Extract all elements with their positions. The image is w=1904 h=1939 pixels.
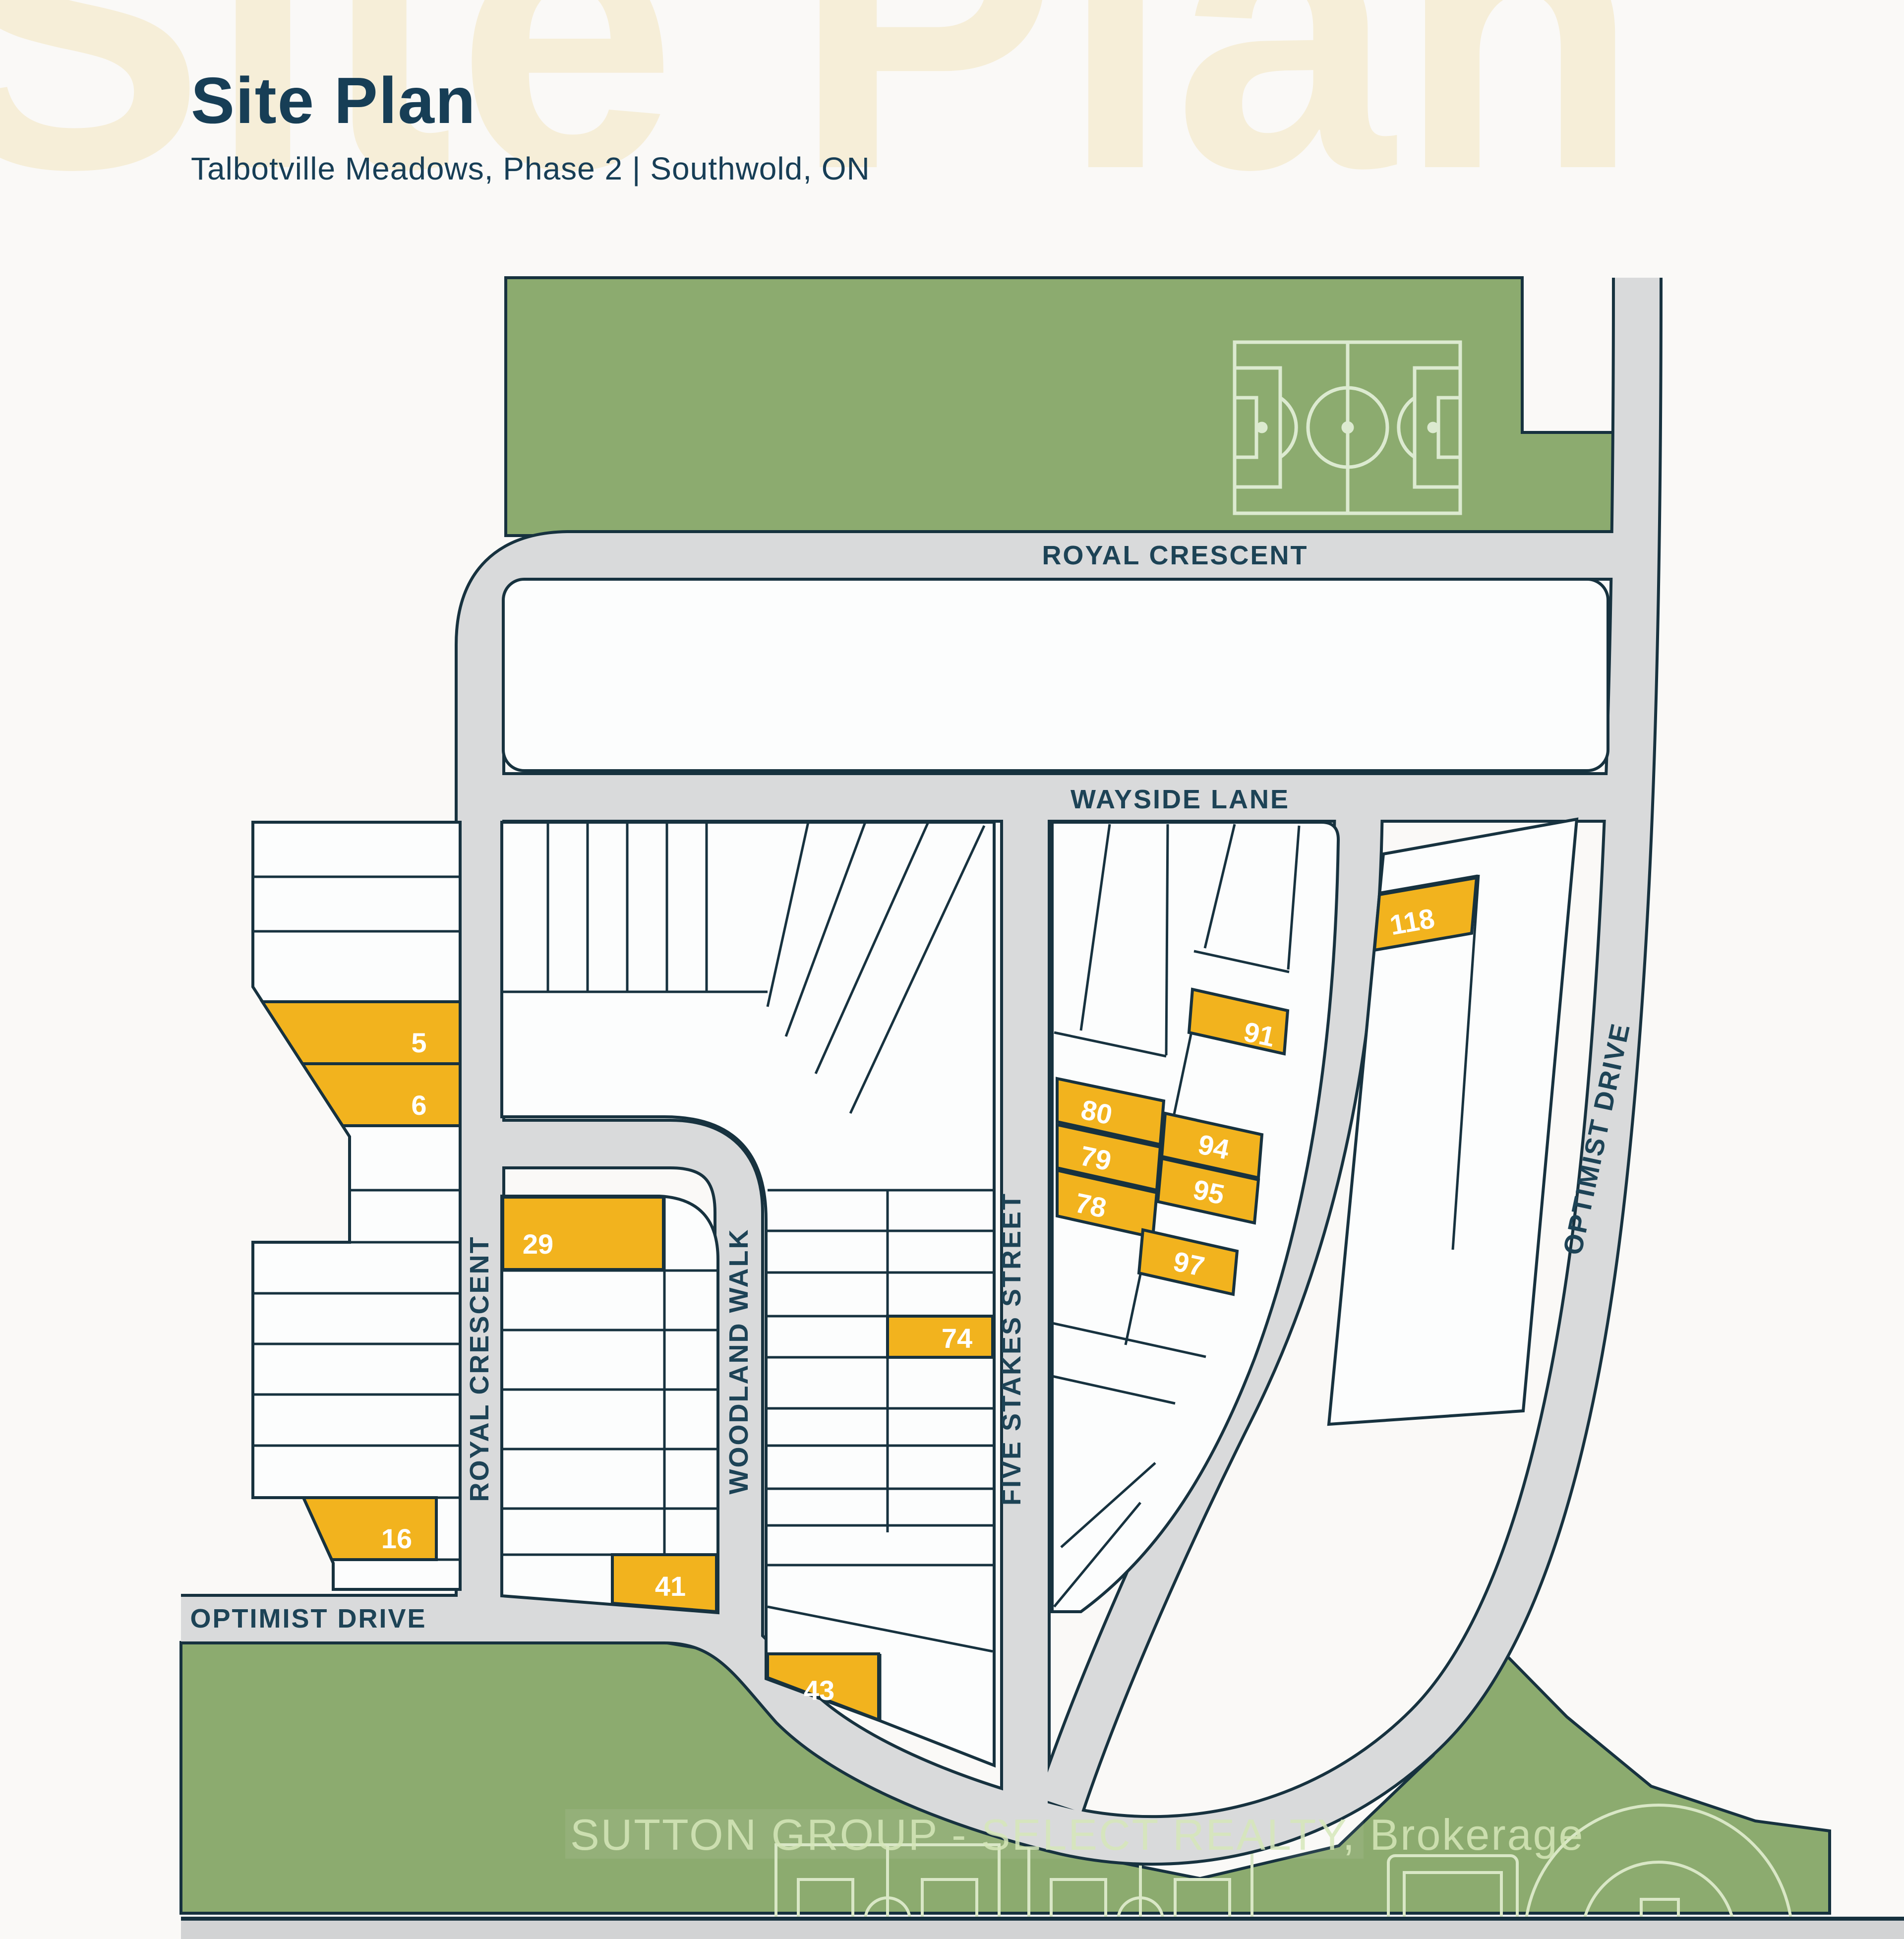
page-subtitle: Talbotville Meadows, Phase 2 | Southwold… [191, 150, 870, 187]
lot-number-6: 6 [411, 1090, 426, 1121]
label-optimist-drive-bottom: OPTIMIST DRIVE [190, 1604, 426, 1634]
lot-number-43: 43 [804, 1675, 834, 1706]
lot-number-74: 74 [942, 1323, 972, 1354]
lot-number-29: 29 [523, 1228, 553, 1260]
label-woodland-walk: WOODLAND WALK [724, 1228, 754, 1495]
brokerage-watermark-text: SUTTON GROUP - SELECT REALTY, Brokerage [570, 1810, 1584, 1859]
lot-number-41: 41 [655, 1571, 686, 1602]
block-west [253, 822, 460, 1589]
bottom-road-strip [181, 1919, 1904, 1939]
label-royal-crescent-top: ROYAL CRESCENT [1042, 541, 1308, 570]
label-wayside-lane: WAYSIDE LANE [1071, 785, 1290, 814]
site-plan-map: 5 6 16 29 41 43 74 78 79 80 91 94 95 97 … [0, 0, 1904, 1939]
lot-5-highlight [262, 1002, 460, 1064]
lot-number-95: 95 [1190, 1173, 1227, 1211]
lot-number-78: 78 [1072, 1187, 1109, 1224]
lot-number-79: 79 [1077, 1140, 1114, 1177]
park-north [506, 278, 1615, 536]
lot-6-highlight [302, 1064, 460, 1126]
lot-number-16: 16 [381, 1523, 412, 1554]
lot-number-94: 94 [1195, 1128, 1232, 1165]
lot-number-97: 97 [1171, 1245, 1207, 1282]
label-five-stakes-street: FIVE STAKES STREET [997, 1192, 1026, 1506]
lot-16-highlight [303, 1498, 436, 1560]
page-title: Site Plan [191, 64, 870, 136]
header: Site Plan Talbotville Meadows, Phase 2 |… [191, 64, 870, 187]
block-royal-wayside [503, 579, 1608, 771]
label-royal-crescent-vertical: ROYAL CRESCENT [465, 1235, 494, 1502]
lot-number-5: 5 [411, 1027, 426, 1058]
lot-number-80: 80 [1078, 1093, 1115, 1131]
lot-74-highlight [888, 1316, 993, 1357]
lot-number-91: 91 [1241, 1016, 1278, 1053]
